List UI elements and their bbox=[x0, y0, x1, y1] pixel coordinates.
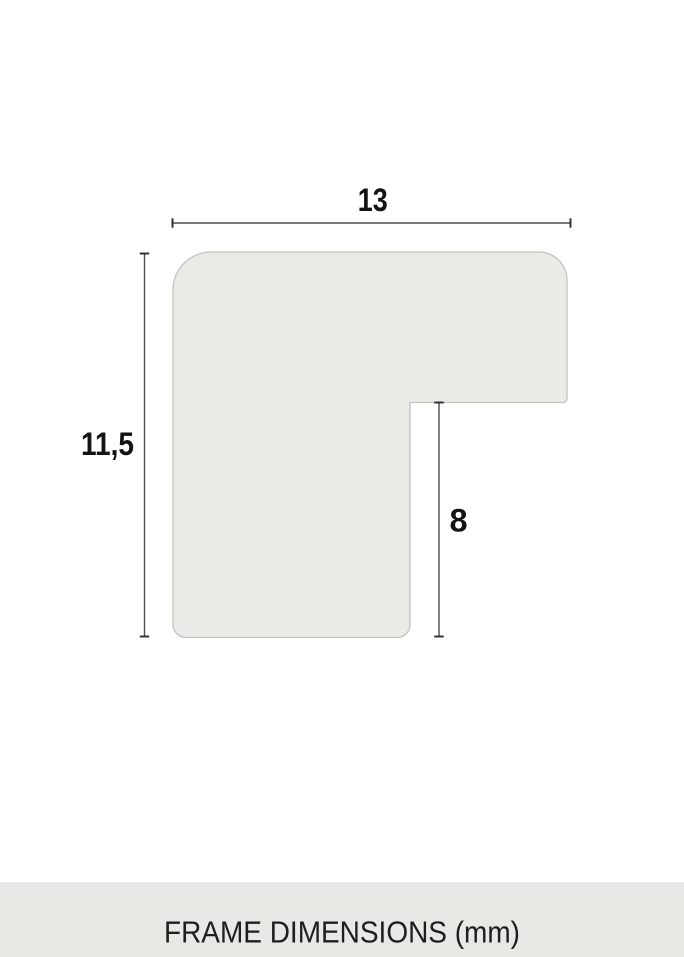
svg-text:13: 13 bbox=[358, 182, 388, 218]
svg-text:FRAME DIMENSIONS (mm): FRAME DIMENSIONS (mm) bbox=[164, 915, 520, 950]
svg-text:11,5: 11,5 bbox=[81, 426, 134, 462]
svg-text:8: 8 bbox=[450, 503, 468, 539]
